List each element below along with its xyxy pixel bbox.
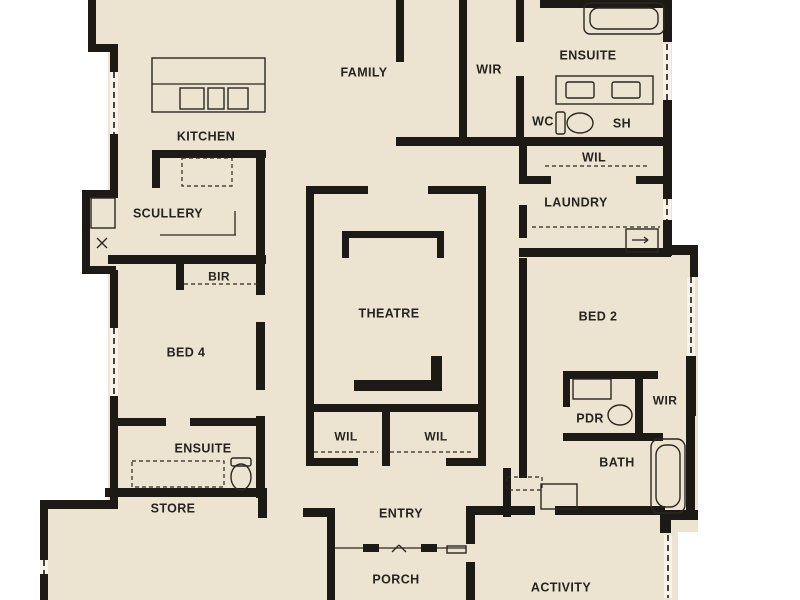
floor-plan-page: FAMILYWIRENSUITEWCSHWILLAUNDRYKITCHENSCU…	[0, 0, 800, 600]
room-label-wir-top: WIR	[476, 63, 502, 77]
wall-segment	[256, 416, 265, 498]
wall-segment	[516, 76, 524, 145]
wall-segment	[555, 506, 665, 515]
door-leaf	[363, 544, 379, 552]
room-label-bir: BIR	[208, 270, 230, 284]
wall-segment	[428, 186, 486, 194]
room-label-wil-left: WIL	[334, 430, 357, 444]
wall-segment	[110, 270, 118, 328]
room-label-bed2: BED 2	[579, 310, 618, 324]
wall-segment	[342, 231, 349, 258]
room-label-family: FAMILY	[340, 66, 387, 80]
room-label-wir-right: WIR	[653, 394, 678, 408]
wall-segment	[540, 0, 672, 8]
room-label-entry: ENTRY	[379, 507, 423, 521]
wall-segment	[152, 150, 160, 188]
wall-segment	[686, 412, 695, 516]
room-label-pdr: PDR	[576, 412, 604, 426]
room-label-store: STORE	[151, 502, 196, 516]
wall-segment	[82, 190, 90, 273]
wall-segment	[306, 186, 368, 194]
wall-segment	[396, 0, 404, 62]
room-label-theatre: THEATRE	[359, 307, 420, 321]
wall-segment	[256, 322, 265, 390]
wall-segment	[303, 508, 335, 517]
wall-segment	[519, 176, 551, 184]
wall-segment	[635, 375, 643, 439]
wall-segment	[40, 500, 48, 560]
wall-segment	[256, 150, 265, 295]
wall-segment	[40, 500, 118, 509]
wall-segment	[516, 0, 524, 42]
wall-segment	[40, 574, 48, 600]
room-label-bed4: BED 4	[167, 346, 206, 360]
floor-area	[40, 502, 335, 600]
wall-segment	[306, 186, 314, 466]
window-band	[663, 44, 671, 100]
wall-segment	[110, 48, 118, 72]
wall-segment	[110, 418, 166, 426]
wall-segment	[152, 150, 266, 158]
wall-segment	[176, 262, 184, 290]
room-label-porch: PORCH	[372, 573, 419, 587]
wall-segment	[686, 356, 696, 416]
wall-segment	[660, 513, 671, 533]
door-leaf	[421, 544, 437, 552]
wall-segment	[306, 458, 358, 466]
wall-segment	[563, 433, 663, 441]
room-label-sh: SH	[613, 117, 631, 131]
wall-segment	[663, 145, 672, 199]
room-label-bath: BATH	[599, 456, 634, 470]
floor-area	[330, 510, 470, 600]
wall-segment	[437, 231, 444, 258]
wall-segment	[519, 205, 527, 238]
wall-segment	[431, 356, 442, 391]
wall-segment	[519, 258, 527, 478]
wall-segment	[466, 562, 475, 600]
room-label-wil-top: WIL	[582, 151, 606, 165]
wall-segment	[190, 418, 265, 426]
room-label-laundry: LAUNDRY	[544, 196, 608, 210]
wall-segment	[342, 231, 444, 238]
room-label-ensuite-top: ENSUITE	[560, 49, 617, 63]
wall-segment	[88, 0, 96, 50]
wall-segment	[327, 508, 335, 600]
room-label-ensuite-left: ENSUITE	[175, 442, 232, 456]
wall-segment	[563, 371, 658, 379]
room-label-wil-right: WIL	[424, 430, 447, 444]
wall-segment	[354, 380, 440, 391]
wall-segment	[110, 134, 118, 198]
wall-segment	[690, 245, 698, 277]
room-label-activity: ACTIVITY	[531, 581, 591, 595]
wall-segment	[466, 506, 530, 515]
room-label-scullery: SCULLERY	[133, 207, 203, 221]
wall-segment	[382, 412, 390, 466]
wall-segment	[478, 186, 486, 466]
wall-segment	[466, 506, 475, 544]
wall-segment	[306, 404, 486, 412]
wall-segment	[446, 458, 486, 466]
floor-plan-svg: FAMILYWIRENSUITEWCSHWILLAUNDRYKITCHENSCU…	[0, 0, 800, 600]
wall-segment	[459, 0, 467, 145]
room-label-kitchen: KITCHEN	[177, 130, 235, 144]
wall-segment	[258, 488, 267, 518]
wall-segment	[396, 137, 672, 146]
wall-segment	[108, 255, 266, 264]
room-label-wc: WC	[532, 115, 554, 129]
